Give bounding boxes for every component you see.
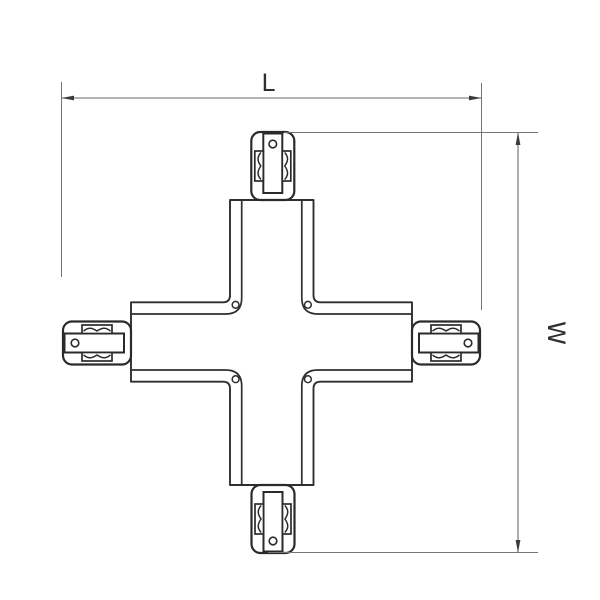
connector-top: [251, 132, 294, 200]
arrowhead-right-icon: [469, 96, 482, 101]
connector-right: [412, 322, 480, 365]
arrowhead-left-icon: [62, 96, 75, 101]
connector-left: [63, 322, 131, 365]
cross-body: [131, 200, 412, 485]
screw-hole: [305, 301, 312, 308]
technical-drawing-page: L W: [0, 0, 600, 600]
screw-hole: [305, 376, 312, 383]
cross-inner-rim: [302, 370, 412, 485]
arrowhead-down-icon: [516, 540, 521, 553]
cross-inner-rim: [131, 200, 242, 314]
screw-hole: [232, 376, 239, 383]
width-label: W: [542, 321, 570, 345]
connector-bottom: [252, 485, 295, 553]
arrowhead-up-icon: [516, 133, 521, 146]
cross-inner-rim: [302, 200, 412, 314]
cross-outer-contour: [131, 200, 412, 485]
x-connector-drawing: L W: [0, 0, 600, 600]
length-label: L: [261, 69, 275, 97]
cross-inner-rim: [131, 370, 242, 485]
screw-hole: [232, 301, 239, 308]
